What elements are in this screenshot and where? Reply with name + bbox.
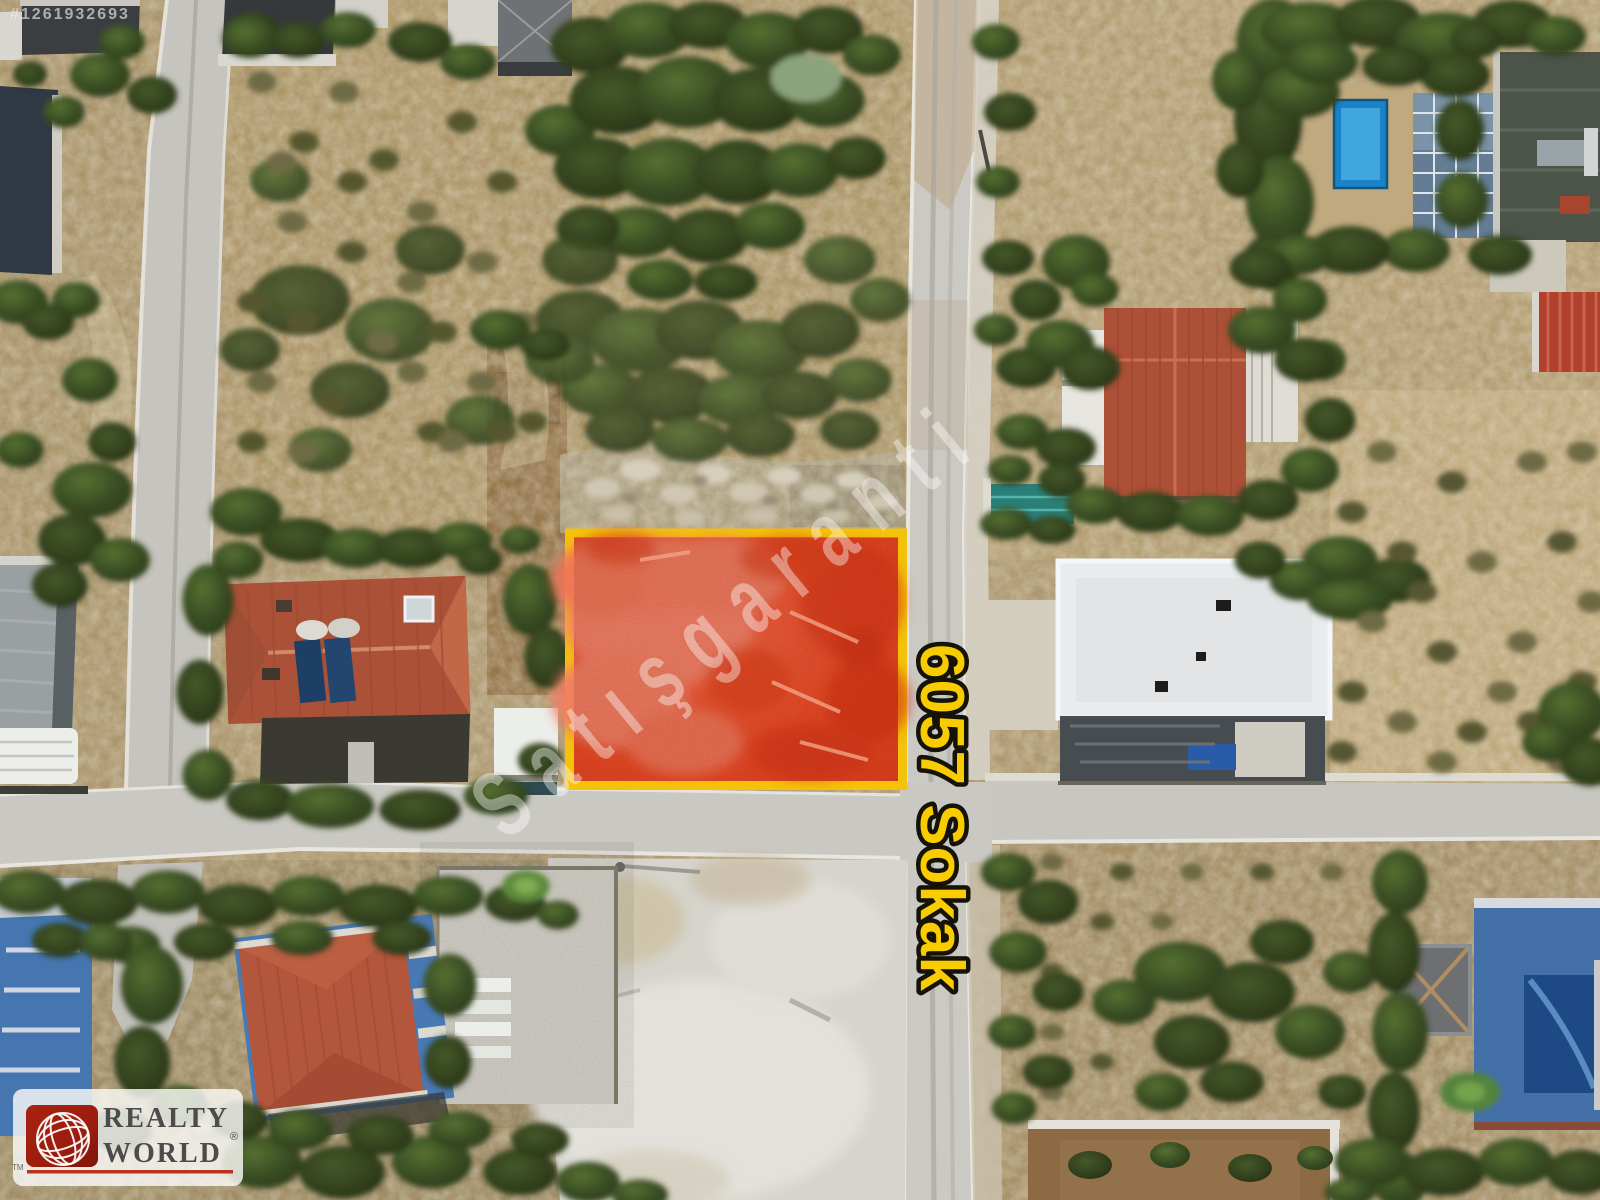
svg-text:TM: TM xyxy=(12,1163,24,1172)
svg-text:#1261932693: #1261932693 xyxy=(10,6,130,23)
svg-text:REALTY: REALTY xyxy=(103,1103,229,1134)
svg-text:®: ® xyxy=(230,1131,238,1143)
svg-text:WORLD: WORLD xyxy=(103,1138,222,1169)
svg-text:6057 Sokak: 6057 Sokak xyxy=(907,644,976,992)
